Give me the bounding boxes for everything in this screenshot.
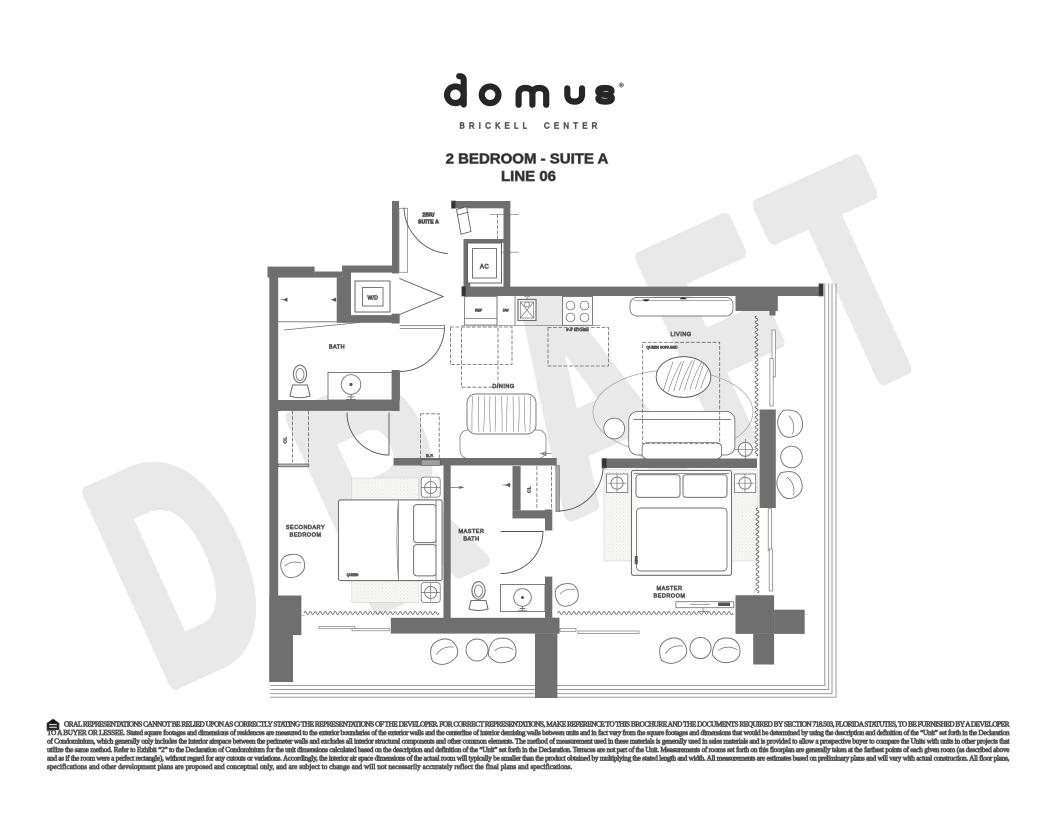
svg-text:DINING: DINING [492, 384, 514, 390]
svg-text:R: R [620, 83, 622, 87]
svg-text:BATH: BATH [329, 345, 345, 351]
svg-text:CL: CL [283, 437, 289, 444]
svg-text:LIVING: LIVING [670, 332, 691, 338]
svg-text:MASTER: MASTER [459, 529, 485, 535]
svg-text:QUEEN SOFA BED: QUEEN SOFA BED [646, 346, 678, 350]
svg-text:BEDROOM: BEDROOM [290, 533, 322, 539]
svg-text:BATH: BATH [463, 537, 479, 543]
svg-text:LINE 06: LINE 06 [501, 168, 556, 185]
svg-text:QUEEN: QUEEN [347, 573, 359, 577]
svg-text:SUITE A: SUITE A [418, 220, 439, 226]
svg-text:BEDROOM: BEDROOM [654, 594, 686, 600]
svg-text:2 BEDROOM - SUITE A: 2 BEDROOM - SUITE A [446, 151, 609, 168]
svg-text:CL: CL [527, 486, 533, 493]
svg-text:KING: KING [635, 555, 639, 564]
svg-text:DW: DW [503, 309, 510, 313]
svg-text:W/D: W/D [367, 296, 378, 302]
svg-text:9'-6" KITCHEN: 9'-6" KITCHEN [566, 328, 589, 332]
svg-text:AC: AC [480, 265, 490, 271]
svg-text:E.F.: E.F. [426, 453, 434, 458]
svg-text:SECONDARY: SECONDARY [286, 525, 325, 531]
svg-text:specifications and other devel: specifications and other development pla… [47, 762, 572, 771]
svg-text:REF: REF [475, 309, 482, 313]
svg-text:MASTER: MASTER [657, 586, 683, 592]
svg-text:2BR/: 2BR/ [422, 213, 435, 219]
svg-text:BRICKELL CENTER: BRICKELL CENTER [459, 122, 601, 131]
